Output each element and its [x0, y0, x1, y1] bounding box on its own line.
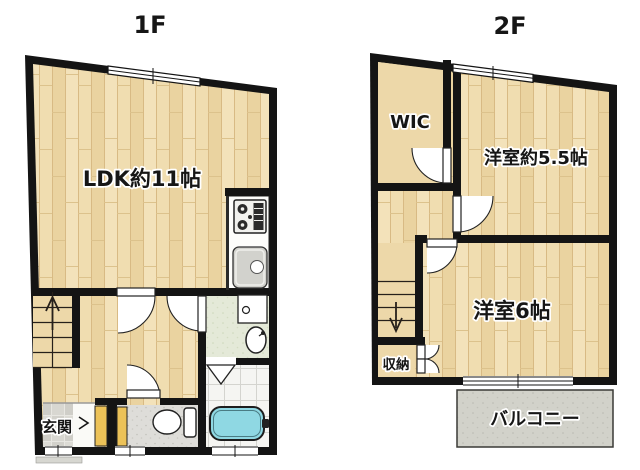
floor1-title: 1F — [133, 11, 166, 39]
wall — [415, 235, 423, 345]
toilet-icon — [153, 408, 196, 437]
room-label-genkan: 玄関 — [42, 418, 72, 436]
shoe-cabinet — [95, 406, 107, 446]
wall — [372, 337, 425, 345]
entrance-step — [36, 457, 82, 463]
bath-window — [212, 445, 258, 457]
floor1-plan: 1F LDK約11帖 玄関 — [25, 11, 277, 463]
kitchen-sink-icon — [233, 247, 267, 288]
bathtub-icon — [210, 407, 269, 440]
toilet-window — [115, 445, 145, 457]
room-label-ldk: LDK約11帖 — [83, 167, 201, 191]
wall — [225, 188, 269, 196]
wall — [72, 292, 80, 368]
wall — [372, 183, 453, 191]
wall — [198, 358, 206, 447]
wall — [443, 60, 451, 148]
room-label-western-55: 洋室約5.5帖 — [484, 147, 588, 169]
room-label-western-6: 洋室6帖 — [473, 299, 551, 323]
floorplan-canvas: 1F LDK約11帖 玄関 — [0, 0, 640, 470]
washbasin-icon — [246, 327, 266, 353]
floor2-plan: 2F WIC 洋室約5.5帖 洋室6帖 収納 バルコニー — [370, 12, 617, 447]
kitchen-partition — [226, 196, 229, 290]
wall — [107, 398, 117, 447]
floor2-title: 2F — [493, 12, 526, 40]
room-label-storage: 収納 — [383, 356, 410, 373]
room-label-wic: WIC — [390, 112, 430, 133]
washing-machine-icon — [238, 295, 267, 323]
gas-stove-icon — [234, 200, 266, 233]
western-room-6-window — [463, 374, 573, 388]
shoe-cabinet — [117, 407, 127, 446]
wall — [453, 70, 461, 196]
floorplan-drawing: 1F LDK約11帖 玄関 — [0, 0, 640, 470]
wall — [457, 235, 609, 243]
wall — [160, 398, 198, 405]
room-label-balcony: バルコニー — [490, 409, 580, 430]
wall — [236, 358, 269, 365]
